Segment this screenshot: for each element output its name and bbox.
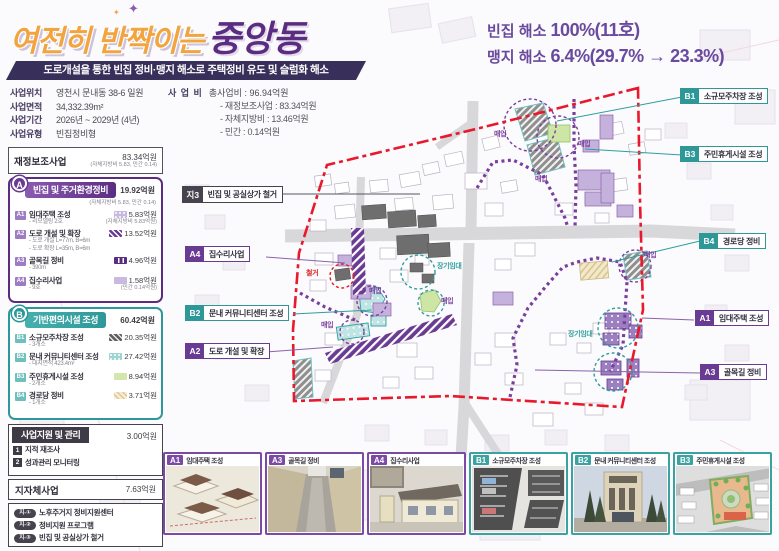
municipal-title: 지자체사업 — [15, 483, 59, 497]
map-label-purchase-2: 매입 — [578, 139, 590, 149]
card-title: 주민휴게시설 조성 — [696, 455, 744, 465]
section-a-title: 빈집 및 주거환경정비 — [25, 182, 116, 198]
map-label-long-lease-2: 장기임대 — [568, 329, 593, 339]
item-amount: 13.52억원 — [124, 229, 157, 238]
item-amount: 20.35억원 — [124, 333, 157, 342]
legend-chip-dots-teal — [109, 353, 122, 360]
title-main: 중앙동 — [208, 18, 304, 59]
item-sub: - 도로 개설 L=77m, B=6m — [29, 238, 90, 246]
item-badge: B4 — [15, 392, 26, 401]
list-item: 1지적 재조사 — [13, 444, 158, 457]
sparkle-icon: ✦ — [113, 8, 120, 17]
subsidy-note: (자체지방비 5.83, 민간 0.14) — [90, 162, 157, 169]
item-badge: 2 — [13, 458, 22, 467]
card-badge: A4 — [371, 455, 387, 465]
item-badge: B3 — [15, 373, 26, 382]
item-amount: 8.94억원 — [129, 372, 157, 381]
card-image-alley — [268, 466, 361, 532]
item-title: 도로 개설 및 확장 — [29, 229, 90, 238]
callout-label: 소규모주차장 조성 — [699, 89, 767, 103]
item-amount: 27.42억원 — [124, 352, 157, 361]
card-title: 문내 커뮤니티센터 조성 — [594, 455, 656, 465]
stat-label: 빈집 해소 — [487, 23, 551, 40]
page-title: ✦ ✦ 여전히 반짝이는 중앙동 — [10, 10, 304, 62]
item-sub: - 대지면적 423.4m² — [29, 361, 99, 369]
poster-page: ✦ ✦ 여전히 반짝이는 중앙동 도로개설을 통한 빈집 정비·맹지 해소로 주… — [0, 0, 779, 551]
callout-badge: A4 — [186, 247, 204, 261]
callout-a1: A1임대주택 조성 — [695, 310, 769, 326]
item-badge: B1 — [15, 334, 26, 343]
list-item: A2 도로 개설 및 확장- 도로 개설 L=77m, B=6m- 도로 확장 … — [10, 228, 161, 255]
subsidy-amount: 83.34억원 — [90, 153, 157, 162]
map-label-purchase-5: 매입 — [369, 286, 381, 296]
list-item: 지-③빈집 및 공실상가 철거 — [14, 532, 157, 545]
callout-b2: B2문내 커뮤니티센터 조성 — [185, 305, 289, 321]
support-amount: 3.00억원 — [127, 431, 157, 442]
item-label: 노후주거지 정비지원센터 — [39, 507, 113, 520]
card-a3: A3골목길 정비 — [265, 452, 364, 535]
card-badge: A3 — [269, 455, 285, 465]
list-item: A1 임대주택 조성- 리모델링 2호 5.83억원(자체지방비 5.83억원) — [10, 208, 161, 228]
item-amount-note: (자체지방비 5.83억원) — [106, 219, 157, 226]
list-item: B2 문내 커뮤니티센터 조성- 대지면적 423.4m² 27.42억원 — [10, 351, 161, 371]
subsidy-box: 재정보조사업 83.34억원 (자체지방비 5.83, 민간 0.14) — [8, 147, 163, 174]
budget-item: - 자체지방비 : 13.46억원 — [220, 113, 316, 126]
stat-label: 맹지 해소 — [487, 49, 551, 66]
sparkle-icon: ✦ — [128, 1, 139, 17]
section-a-note: (자체지방비 5.83, 민간 0.14) — [15, 200, 156, 207]
legend-chip-hatch-purple — [109, 230, 122, 237]
project-budget: 사 업 비 총사업비 : 96.94억원 - 재정보조사업 : 83.34억원 … — [168, 87, 316, 139]
item-label: 성과관리 모니터링 — [25, 457, 80, 470]
item-badge: 지-③ — [14, 534, 36, 543]
item-title: 골목길 정비 — [29, 256, 64, 265]
card-a4: A4집수리사업 — [367, 452, 466, 535]
callout-badge: B2 — [186, 306, 204, 320]
section-a-amount: 19.92억원 — [120, 185, 155, 196]
card-badge: B1 — [473, 455, 489, 465]
item-badge: 지-① — [14, 509, 36, 518]
item-sub: - 리모델링 2호 — [29, 219, 70, 227]
callout-a2: A2도로 개설 및 확장 — [185, 343, 270, 359]
legend-chip-solid-lavender — [114, 277, 127, 284]
item-amount-note: (민간 0.14억원) — [114, 285, 157, 292]
callout-label: 문내 커뮤니티센터 조성 — [204, 306, 288, 320]
info-value: 34,332.39m² — [56, 101, 103, 115]
legend-chip-solid-green — [114, 373, 127, 380]
section-b-box: B 기반편의시설 조성 60.42억원 B1 소규모주차장 조성- 3개소 20… — [8, 307, 163, 420]
list-item: B3 주민휴게시설 조성- 2개소 8.94억원 — [10, 370, 161, 390]
item-sub: - 도로 확장 L=35m, B=6m — [29, 246, 90, 254]
item-sub: - 3개소 — [29, 342, 84, 350]
item-sub: - 9호 — [29, 285, 62, 293]
info-value: 영천시 문내동 38-6 일원 — [56, 87, 143, 101]
item-title: 소규모주차장 조성 — [29, 333, 84, 342]
section-a-box: A 빈집 및 주거환경정비 19.92억원 (자체지방비 5.83, 민간 0.… — [8, 177, 163, 303]
callout-b3: B3주민휴게시설 조성 — [680, 146, 768, 162]
item-sub: - 390m — [29, 265, 64, 273]
callout-badge: 지3 — [183, 187, 203, 202]
callout-badge: A2 — [186, 344, 204, 358]
legend-chip-hatch-dark — [109, 334, 122, 341]
budget-item: - 재정보조사업 : 83.34억원 — [220, 100, 316, 113]
budget-total: 총사업비 : 96.94억원 — [209, 87, 289, 100]
item-title: 경로당 정비 — [29, 391, 64, 400]
card-a1: A1임대주택 조성 — [163, 452, 262, 535]
list-item: B4 경로당 정비- 1개소 3.71억원 — [10, 390, 161, 410]
callout-badge: B3 — [681, 147, 699, 161]
section-b-title: 기반편의시설 조성 — [25, 312, 106, 328]
map-label-purchase-4: 매입 — [644, 250, 656, 260]
map-label-purchase-3: 매입 — [535, 174, 547, 184]
budget-item: - 민간 : 0.14억원 — [220, 126, 316, 139]
item-title: 집수리사업 — [29, 276, 62, 285]
card-badge: B3 — [677, 455, 693, 465]
title-script: 여전히 반짝이는 — [10, 25, 204, 58]
callout-label: 집수리사업 — [204, 247, 249, 261]
legend-chip-dots-lavender — [114, 211, 127, 218]
legend-chip-dash-purple — [114, 257, 127, 264]
card-title: 소규모주차장 조성 — [492, 455, 540, 465]
map-label-demolish: 철거 — [306, 268, 318, 278]
callout-badge: B1 — [681, 89, 699, 103]
callout-label: 임대주택 조성 — [714, 311, 768, 325]
callout-label: 도로 개설 및 확장 — [204, 344, 269, 358]
map-label-purchase-7: 매입 — [441, 296, 453, 306]
stat-value: 6.4%(29.7% → 23.3%) — [551, 46, 725, 66]
card-image-house-repair — [370, 466, 463, 532]
info-label: 사업기간 — [10, 114, 56, 128]
card-b2: B2문내 커뮤니티센터 조성 — [571, 452, 670, 535]
list-item: 지-②정비지원 프로그램 — [14, 520, 157, 533]
project-map — [165, 85, 779, 460]
item-amount: 1.58억원 — [129, 276, 157, 285]
callout-label: 경로당 정비 — [718, 234, 765, 248]
card-badge: B2 — [575, 455, 591, 465]
info-value: 빈집정비형 — [56, 128, 96, 142]
callout-label: 빈집 및 공실상가 철거 — [203, 187, 282, 202]
item-badge: A2 — [15, 230, 26, 239]
list-item: A4 집수리사업- 9호 1.58억원(민간 0.14억원) — [10, 274, 161, 294]
card-badge: A1 — [167, 455, 183, 465]
card-title: 집수리사업 — [390, 455, 419, 465]
callout-a4: A4집수리사업 — [185, 246, 250, 262]
municipal-header: 지자체사업 7.63억원 — [8, 479, 163, 500]
support-box: 사업지원 및 관리 3.00억원 1지적 재조사 2성과관리 모니터링 — [8, 424, 163, 476]
item-label: 빈집 및 공실상가 철거 — [39, 532, 104, 545]
list-item: 지-①노후주거지 정비지원센터 — [14, 507, 157, 520]
subtitle-banner: 도로개설을 통한 빈집 정비·맹지 해소로 주택정비 유도 및 슬럼화 해소 — [6, 61, 366, 80]
callout-badge: A1 — [696, 311, 714, 325]
item-sub: - 2개소 — [29, 381, 84, 389]
item-badge: 1 — [13, 446, 22, 455]
item-label: 정비지원 프로그램 — [39, 520, 94, 533]
item-title: 임대주택 조성 — [29, 210, 70, 219]
item-amount: 5.83억원 — [129, 210, 157, 219]
callout-b1: B1소규모주차장 조성 — [680, 88, 768, 104]
key-stats: 빈집 해소 100%(11호) 맹지 해소 6.4%(29.7% → 23.3%… — [487, 18, 724, 70]
budget-label: 사 업 비 — [168, 87, 203, 100]
map-label-purchase-6: 매입 — [321, 320, 333, 330]
project-cards: A1임대주택 조성 A3골목길 정비 — [163, 452, 772, 535]
municipal-amount: 7.63억원 — [126, 484, 156, 495]
item-title: 문내 커뮤니티센터 조성 — [29, 352, 99, 361]
callout-label: 골목길 정비 — [719, 365, 766, 379]
card-title: 골목길 정비 — [288, 455, 319, 465]
card-title: 임대주택 조성 — [186, 455, 223, 465]
subsidy-title: 재정보조사업 — [14, 154, 66, 168]
card-image-parking — [472, 466, 565, 532]
municipal-items: 지-①노후주거지 정비지원센터 지-②정비지원 프로그램 지-③빈집 및 공실상… — [8, 503, 163, 547]
map-rental-housing-parcels — [601, 313, 642, 390]
map-label-purchase-1: 매입 — [494, 129, 506, 139]
stat-value: 100%(11호) — [551, 20, 640, 40]
list-item: B1 소규모주차장 조성- 3개소 20.35억원 — [10, 331, 161, 351]
callout-badge: A3 — [701, 365, 719, 379]
item-badge: A3 — [15, 257, 26, 266]
support-title: 사업지원 및 관리 — [12, 427, 89, 443]
list-item: 2성과관리 모니터링 — [13, 457, 158, 470]
callout-badge: B4 — [700, 234, 718, 248]
item-badge: A1 — [15, 211, 26, 220]
item-label: 지적 재조사 — [25, 444, 60, 457]
card-b3: B3주민휴게시설 조성 — [673, 452, 772, 535]
card-image-rental-housing — [166, 466, 259, 532]
item-amount: 3.71억원 — [129, 391, 157, 400]
project-info: 사업위치영천시 문내동 38-6 일원 사업면적34,332.39m² 사업기간… — [10, 87, 143, 141]
item-badge: A4 — [15, 277, 26, 286]
callout-ji3: 지3빈집 및 공실상가 철거 — [182, 186, 283, 203]
card-b1: B1소규모주차장 조성 — [469, 452, 568, 535]
item-amount: 4.96억원 — [129, 256, 157, 265]
list-item: A3 골목길 정비- 390m 4.96억원 — [10, 255, 161, 275]
info-label: 사업유형 — [10, 128, 56, 142]
callout-label: 주민휴게시설 조성 — [699, 147, 767, 161]
info-label: 사업면적 — [10, 101, 56, 115]
item-badge: B2 — [15, 353, 26, 362]
legend-chip-hatch-beige — [114, 392, 127, 399]
item-title: 주민휴게시설 조성 — [29, 372, 84, 381]
item-badge: 지-② — [14, 521, 36, 530]
section-b-badge: B — [12, 306, 27, 321]
callout-b4: B4경로당 정비 — [699, 233, 766, 249]
item-sub: - 1개소 — [29, 400, 64, 408]
info-label: 사업위치 — [10, 87, 56, 101]
section-a-badge: A — [12, 176, 27, 191]
callout-a3: A3골목길 정비 — [700, 364, 767, 380]
map-label-long-lease-1: 장기임대 — [437, 261, 462, 271]
section-b-amount: 60.42억원 — [120, 315, 155, 326]
info-value: 2026년 ~ 2029년 (4년) — [56, 114, 139, 128]
card-image-community-center — [574, 466, 667, 532]
card-image-rest-area-plan — [676, 466, 769, 532]
